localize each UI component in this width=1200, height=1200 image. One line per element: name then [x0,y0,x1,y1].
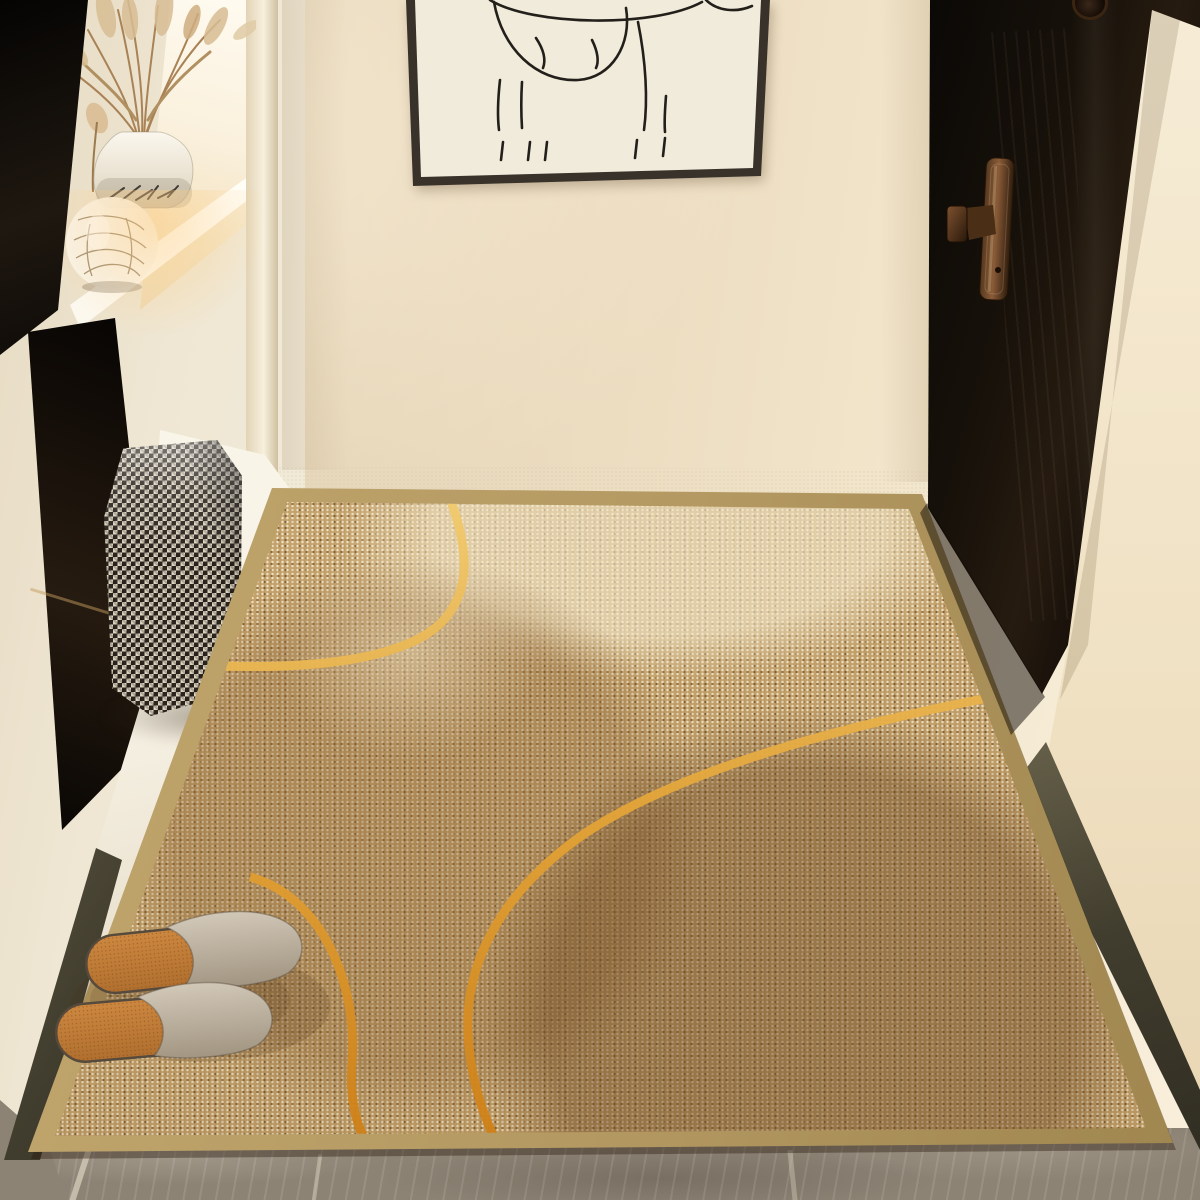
handle-knob [947,206,967,242]
keyhole-icon [995,267,1001,273]
pampas-plumes [60,0,256,70]
entryway-photo [0,0,1200,1200]
door-handle [945,148,1045,326]
handle-lever [965,205,996,240]
under-shelf-light [62,190,267,340]
cabinet-wall-shadow [282,0,366,470]
wall-art-frame [402,0,774,194]
slippers [50,898,342,1090]
gold-arc-large-right [468,695,1003,1150]
line-art-drawing [402,0,774,194]
